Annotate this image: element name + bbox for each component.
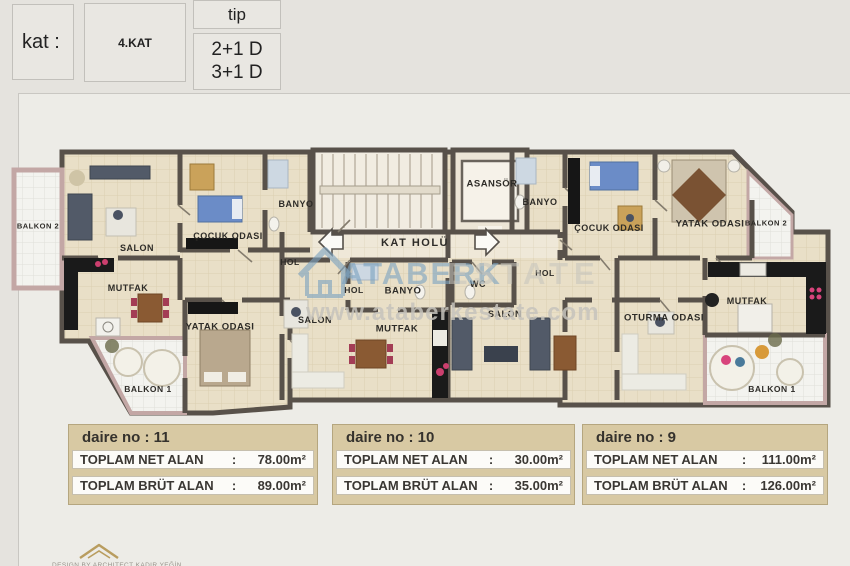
colon: : bbox=[485, 478, 497, 493]
balcony-right-top bbox=[748, 172, 792, 258]
gross-area-row: TOPLAM BRÜT ALAN : 126.00m² bbox=[586, 476, 824, 495]
room-label-banyo-right: BANYO bbox=[522, 197, 557, 207]
apartment-card-11: daire no : 11 TOPLAM NET ALAN : 78.00m² … bbox=[68, 424, 318, 505]
colon: : bbox=[228, 452, 240, 467]
room-label-asansor: ASANSÖR bbox=[466, 179, 517, 190]
room-label-banyo-left: BANYO bbox=[278, 199, 313, 209]
gross-area-row: TOPLAM BRÜT ALAN : 89.00m² bbox=[72, 476, 314, 495]
type-value-box: 2+1 D 3+1 D bbox=[193, 33, 281, 90]
architect-logo-icon bbox=[80, 545, 118, 558]
room-label-mutfak-right: MUTFAK bbox=[727, 296, 768, 306]
room-label-salon-left: SALON bbox=[120, 243, 154, 253]
gross-area-value: 126.00m² bbox=[750, 478, 816, 493]
net-area-row: TOPLAM NET ALAN : 30.00m² bbox=[336, 450, 571, 469]
floor-label-box: kat : bbox=[12, 4, 74, 80]
type-label-box: tip bbox=[193, 0, 281, 29]
room-label-salon-center: SALON bbox=[298, 315, 332, 325]
gross-area-row: TOPLAM BRÜT ALAN : 35.00m² bbox=[336, 476, 571, 495]
net-area-value: 111.00m² bbox=[750, 452, 816, 467]
room-label-mutfak-center: MUTFAK bbox=[376, 324, 419, 335]
room-label-hol-right: HOL bbox=[535, 268, 554, 278]
room-label-salon-right: SALON bbox=[488, 309, 522, 319]
stairs bbox=[313, 150, 445, 232]
net-area-label: TOPLAM NET ALAN bbox=[594, 452, 738, 467]
net-area-row: TOPLAM NET ALAN : 111.00m² bbox=[586, 450, 824, 469]
apartment-card-10: daire no : 10 TOPLAM NET ALAN : 30.00m² … bbox=[332, 424, 575, 505]
room-label-mutfak-left: MUTFAK bbox=[108, 283, 149, 293]
gross-area-label: TOPLAM BRÜT ALAN bbox=[344, 478, 485, 493]
room-label-balkon2-left: BALKON 2 bbox=[17, 222, 59, 231]
floor-plan-page: kat : 4.KAT tip 2+1 D 3+1 D bbox=[0, 0, 850, 566]
room-label-cocuk-left: ÇOCUK ODASI bbox=[193, 231, 263, 241]
apartment-card-9: daire no : 9 TOPLAM NET ALAN : 111.00m² … bbox=[582, 424, 828, 505]
gross-area-label: TOPLAM BRÜT ALAN bbox=[80, 478, 228, 493]
room-label-cocuk-right: ÇOCUK ODASI bbox=[574, 223, 644, 233]
room-label-balkon1-right: BALKON 1 bbox=[748, 384, 795, 394]
colon: : bbox=[228, 478, 240, 493]
room-label-hol-center: HOL bbox=[344, 285, 363, 295]
colon: : bbox=[485, 452, 497, 467]
room-label-wc: WC bbox=[470, 279, 486, 289]
floor-value-box: 4.KAT bbox=[84, 3, 186, 82]
net-area-label: TOPLAM NET ALAN bbox=[344, 452, 485, 467]
net-area-value: 30.00m² bbox=[497, 452, 563, 467]
room-label-kat-holu: KAT HOLÜ bbox=[381, 237, 449, 249]
architect-credit: DESIGN BY ARCHITECT KADIR YEĞİN bbox=[52, 562, 182, 566]
gross-area-value: 35.00m² bbox=[497, 478, 563, 493]
colon: : bbox=[738, 452, 750, 467]
gross-area-label: TOPLAM BRÜT ALAN bbox=[594, 478, 738, 493]
room-label-yatak-left: YATAK ODASI bbox=[186, 322, 255, 333]
room-label-yatak-right: YATAK ODASI bbox=[676, 219, 745, 230]
net-area-value: 78.00m² bbox=[240, 452, 306, 467]
room-label-oturma-right: OTURMA ODASI bbox=[624, 313, 704, 324]
apartment-title: daire no : 10 bbox=[333, 425, 574, 450]
net-area-row: TOPLAM NET ALAN : 78.00m² bbox=[72, 450, 314, 469]
gross-area-value: 89.00m² bbox=[240, 478, 306, 493]
room-label-banyo-center: BANYO bbox=[385, 286, 422, 297]
room-label-hol-left: HOL bbox=[280, 257, 299, 267]
apartment-title: daire no : 11 bbox=[69, 425, 317, 450]
type-line-2: 3+1 D bbox=[211, 62, 262, 84]
apartment-title: daire no : 9 bbox=[583, 425, 827, 450]
colon: : bbox=[738, 478, 750, 493]
net-area-label: TOPLAM NET ALAN bbox=[80, 452, 228, 467]
room-label-balkon1-left: BALKON 1 bbox=[124, 384, 171, 394]
room-label-balkon2-right: BALKON 2 bbox=[745, 219, 787, 228]
type-line-1: 2+1 D bbox=[211, 39, 262, 61]
